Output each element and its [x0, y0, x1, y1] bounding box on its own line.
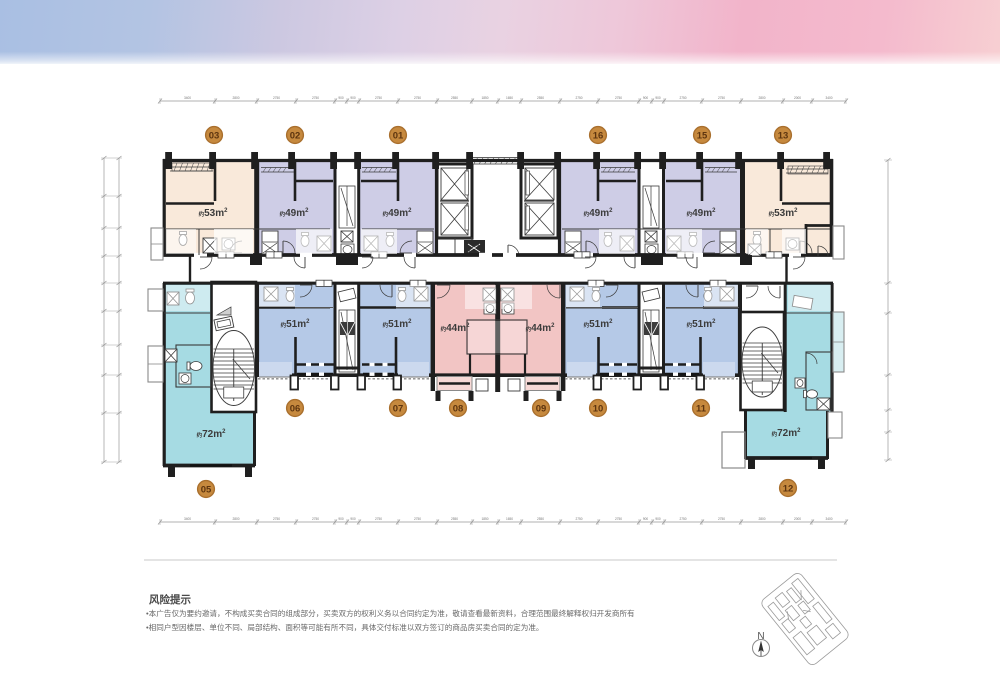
svg-text:2750: 2750 — [615, 517, 622, 521]
svg-text:•本广告仅为要约邀请，不构成买卖合同的组成部分，买卖双方的权: •本广告仅为要约邀请，不构成买卖合同的组成部分，买卖双方的权利义务以合同约定为准… — [146, 608, 635, 618]
svg-text:2750: 2750 — [375, 96, 382, 100]
svg-text:01: 01 — [393, 130, 404, 141]
svg-text:1650: 1650 — [506, 96, 513, 100]
svg-text:900: 900 — [655, 96, 661, 100]
svg-text:1850: 1850 — [481, 96, 488, 100]
svg-text:900: 900 — [643, 96, 649, 100]
svg-text:06: 06 — [290, 403, 301, 414]
svg-text:07: 07 — [393, 403, 404, 414]
svg-text:02: 02 — [290, 130, 301, 141]
svg-text:03: 03 — [209, 130, 220, 141]
svg-text:16: 16 — [593, 130, 604, 141]
svg-text:2750: 2750 — [679, 96, 686, 100]
svg-text:3400: 3400 — [825, 96, 832, 100]
svg-text:2000: 2000 — [794, 96, 801, 100]
svg-text:3400: 3400 — [184, 96, 191, 100]
svg-text:2800: 2800 — [758, 517, 765, 521]
svg-text:12: 12 — [783, 483, 794, 494]
svg-text:08: 08 — [453, 403, 464, 414]
svg-text:09: 09 — [536, 403, 547, 414]
svg-text:1650: 1650 — [506, 517, 513, 521]
svg-text:900: 900 — [338, 96, 344, 100]
svg-text:900: 900 — [643, 517, 649, 521]
svg-text:2750: 2750 — [273, 96, 280, 100]
svg-text:2750: 2750 — [615, 96, 622, 100]
svg-text:2550: 2550 — [537, 517, 544, 521]
svg-text:3400: 3400 — [184, 517, 191, 521]
svg-text:2550: 2550 — [537, 96, 544, 100]
svg-text:900: 900 — [338, 517, 344, 521]
svg-text:2750: 2750 — [312, 96, 319, 100]
svg-text:2800: 2800 — [232, 96, 239, 100]
svg-text:N: N — [757, 631, 764, 642]
svg-text:13: 13 — [778, 130, 789, 141]
svg-text:2750: 2750 — [414, 96, 421, 100]
svg-text:05: 05 — [201, 484, 212, 495]
svg-text:2750: 2750 — [575, 96, 582, 100]
svg-text:风险提示: 风险提示 — [149, 593, 191, 606]
svg-text:2800: 2800 — [758, 96, 765, 100]
svg-text:2550: 2550 — [451, 96, 458, 100]
svg-text:3400: 3400 — [825, 517, 832, 521]
svg-text:15: 15 — [697, 130, 708, 141]
svg-text:2750: 2750 — [718, 96, 725, 100]
svg-text:2000: 2000 — [794, 517, 801, 521]
svg-text:2750: 2750 — [273, 517, 280, 521]
svg-text:900: 900 — [350, 96, 356, 100]
svg-text:11: 11 — [696, 403, 707, 414]
svg-text:2750: 2750 — [312, 517, 319, 521]
svg-text:900: 900 — [655, 517, 661, 521]
svg-text:900: 900 — [350, 517, 356, 521]
svg-text:2750: 2750 — [718, 517, 725, 521]
svg-text:2800: 2800 — [232, 517, 239, 521]
svg-text:2550: 2550 — [451, 517, 458, 521]
svg-text:•相同户型因楼层、单位不同、局部结构、面积等可能有所不同，具: •相同户型因楼层、单位不同、局部结构、面积等可能有所不同，具体交付标准以双方签订… — [146, 622, 544, 632]
svg-text:2750: 2750 — [575, 517, 582, 521]
svg-text:2750: 2750 — [679, 517, 686, 521]
svg-text:2750: 2750 — [375, 517, 382, 521]
svg-text:10: 10 — [593, 403, 604, 414]
svg-text:2750: 2750 — [414, 517, 421, 521]
svg-text:1850: 1850 — [481, 517, 488, 521]
